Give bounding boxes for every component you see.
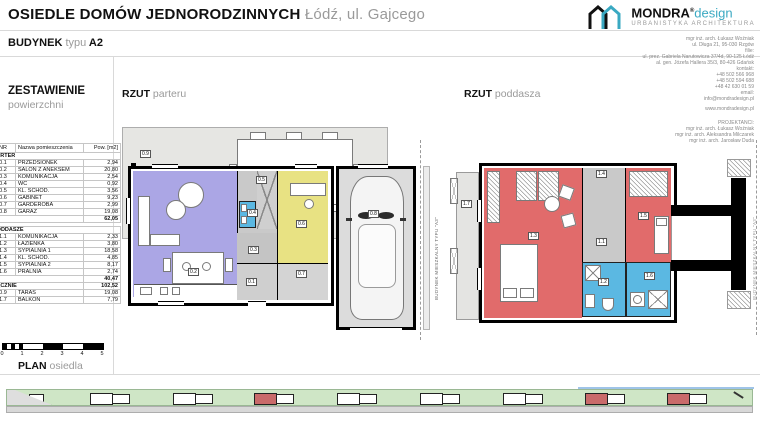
- logo-subtitle: URBANISTYKA ARCHITEKTURA: [631, 21, 755, 27]
- wall-section: [727, 159, 751, 177]
- site-building: [173, 392, 213, 406]
- section-parter: PARTER: [0, 153, 121, 160]
- site-building: [503, 392, 543, 406]
- attic-wall: [731, 178, 746, 290]
- room-entry: [237, 263, 277, 300]
- scale-bar: [2, 343, 104, 350]
- site-road: [6, 406, 753, 413]
- furniture-chair: [225, 258, 233, 272]
- kitchen-sink: [172, 287, 180, 295]
- scale-tick: 5: [97, 351, 107, 357]
- table-header-row: NR Nazwa pomieszczenia Pow. [m2]: [0, 144, 121, 153]
- railing-section: [450, 178, 458, 204]
- table-row: 0.6GABINET9,23: [0, 195, 121, 202]
- site-building-highlighted: [254, 392, 294, 406]
- attic-wall: [671, 260, 731, 271]
- room-label: 1.2: [598, 278, 609, 286]
- summary-title: ZESTAWIENIE: [8, 85, 85, 97]
- attic-wall: [671, 205, 731, 216]
- scale-tick: 2: [37, 351, 47, 357]
- col-area: Pow. [m2]: [84, 144, 121, 153]
- room-hall-attic: [582, 232, 626, 262]
- section-poddasze: PODDASZE: [0, 227, 121, 234]
- room-label: 0.1: [246, 278, 257, 286]
- grand-total-row: ŁĄCZNIE102,52: [0, 283, 121, 290]
- room-label: 1.5: [638, 212, 649, 220]
- furniture-pillow: [503, 288, 517, 298]
- logo-wordmark: MONDRA®design: [631, 4, 755, 20]
- table-row: 1.6PRALNIA2,74: [0, 269, 121, 276]
- ground-floor-plan-title: RZUT parteru: [122, 88, 186, 100]
- furniture-wardrobe: [629, 171, 668, 197]
- divider: [0, 30, 760, 31]
- bath-sink: [585, 294, 595, 308]
- furniture-pillow: [520, 288, 534, 298]
- table-row: 0.8GARAŻ19,08: [0, 209, 121, 216]
- building-type: A2: [89, 37, 103, 49]
- scale-tick: 0: [0, 351, 7, 357]
- room-label: 0.4: [247, 209, 258, 217]
- furniture-chair: [163, 258, 171, 272]
- furniture-desk: [290, 183, 326, 196]
- window: [158, 301, 184, 306]
- neighbour-wall: [423, 166, 430, 330]
- room-label: 1.7: [461, 200, 472, 208]
- furniture-chair: [286, 132, 302, 140]
- scale-tick: 1: [17, 351, 27, 357]
- furniture-chair: [304, 199, 314, 209]
- scale-tick: 4: [77, 351, 87, 357]
- room-label: 1.6: [644, 272, 655, 280]
- room-label: 0.6: [296, 220, 307, 228]
- car-roof: [358, 224, 396, 288]
- table-row: 1.3SYPIALNIA 118,58: [0, 248, 121, 255]
- neighbour-building-note: BUDYNEK MIESZKALNY TYPU "A3": [752, 217, 757, 300]
- summary-subtitle: powierzchni: [8, 99, 63, 111]
- furniture-sofa: [150, 234, 180, 246]
- table-row: 1.2ŁAZIENKA3,80: [0, 241, 121, 248]
- balcony-door: [477, 200, 482, 222]
- table-row: 1.5SYPIALNIA 28,17: [0, 262, 121, 269]
- furniture-table-round: [166, 200, 186, 220]
- table-row: 0.2SALON Z ANEKSEM20,80: [0, 167, 121, 174]
- furniture-wardrobe: [487, 171, 500, 223]
- bath-toilet: [602, 298, 614, 311]
- table-row: 0.7GARDEROBA2,99: [0, 202, 121, 209]
- room-balcony: [456, 172, 479, 320]
- table-row: 0.4WC0,92: [0, 181, 121, 188]
- col-name: Nazwa pomieszczenia: [16, 144, 84, 153]
- site-building-highlighted: [667, 392, 707, 406]
- room-label: 0.9: [140, 150, 151, 158]
- contact-block: mgr inż. arch. Łukasz Woźniak ul. Długa …: [643, 36, 754, 144]
- poddasze-subtotal: 40,47: [0, 276, 121, 283]
- room-label: 0.8: [368, 210, 379, 218]
- site-building: [420, 392, 460, 406]
- kitchen-sink: [160, 287, 168, 295]
- room-label: 0.2: [188, 268, 199, 276]
- siteplan-title: PLAN osiedla: [18, 360, 83, 372]
- boundary-line: [420, 140, 421, 340]
- area-table: NR Nazwa pomieszczenia Pow. [m2] PARTER …: [0, 143, 121, 304]
- wc-toilet: [241, 216, 247, 224]
- table-row: 1.4KL. SCHOD.4,85: [0, 255, 121, 262]
- car-mirror: [400, 218, 406, 221]
- room-label: 1.4: [596, 170, 607, 178]
- table-row: 0.9TARAS19,08: [0, 290, 121, 297]
- building-title: BUDYNEK typu A2: [8, 37, 103, 49]
- estate-name: OSIEDLE DOMÓW JEDNORODZINNYCH: [8, 6, 300, 23]
- table-row: 0.1PRZEDSIONEK2,94: [0, 160, 121, 167]
- table-row: 1.7BALKON7,79: [0, 297, 121, 304]
- window: [126, 198, 131, 224]
- car-windshield: [378, 212, 394, 219]
- window: [152, 164, 178, 169]
- window: [295, 164, 317, 169]
- washing-machine-drum: [633, 295, 642, 304]
- attic-plan-title: RZUT poddasza: [464, 88, 540, 100]
- laundry-counter: [648, 290, 668, 309]
- entry-door: [248, 301, 266, 306]
- table-row: 0.3KOMUNIKACJA2,54: [0, 174, 121, 181]
- table-row: 1.1KOMUNIKACJA2,33: [0, 234, 121, 241]
- col-nr: NR: [0, 144, 16, 153]
- furniture-table-round: [544, 196, 560, 212]
- company-logo: MONDRA®design URBANISTYKA ARCHITEKTURA: [587, 4, 755, 30]
- garage-door: [350, 327, 402, 332]
- furniture-pillow: [656, 218, 667, 226]
- siteplan-buildings: [6, 389, 753, 406]
- balcony-door: [477, 268, 482, 290]
- designers-list: mgr inż. arch. Łukasz Woźniak mgr inż. a…: [643, 126, 754, 144]
- room-wardrobe: [277, 263, 328, 300]
- furniture-plate: [202, 262, 211, 271]
- parter-subtotal: 62,05: [0, 216, 121, 223]
- room-label: 0.7: [296, 270, 307, 278]
- building-label: BUDYNEK: [8, 37, 62, 49]
- site-building: [337, 392, 377, 406]
- kitchen-hob: [140, 287, 152, 295]
- neighbour-building-note: BUDYNEK MIESZKALNY TYPU "A3": [434, 217, 439, 300]
- mondra-m-icon: [587, 4, 625, 30]
- roof-over-garage: [671, 216, 731, 260]
- drawing-sheet: OSIEDLE DOMÓW JEDNORODZINNYCH Łódź, ul. …: [0, 0, 760, 428]
- room-label: 0.5: [256, 176, 267, 184]
- room-label: 1.3: [528, 232, 539, 240]
- car-mirror: [346, 218, 352, 221]
- table-row: 0.5KL. SCHOD.3,56: [0, 188, 121, 195]
- building-typu: typu: [65, 37, 86, 49]
- divider: [0, 374, 760, 375]
- furniture-chair: [322, 132, 338, 140]
- furniture-sofa: [138, 196, 150, 246]
- railing-section: [450, 248, 458, 274]
- contact-lines: mgr inż. arch. Łukasz Woźniak ul. Długa …: [643, 36, 754, 102]
- site-building-highlighted: [585, 392, 625, 406]
- room-label: 0.3: [248, 246, 259, 254]
- furniture-chair: [250, 132, 266, 140]
- furniture-wardrobe: [516, 171, 537, 201]
- scale-tick: 3: [57, 351, 67, 357]
- site-building: [90, 392, 130, 406]
- estate-location: Łódź, ul. Gajcego: [305, 6, 425, 23]
- wall-section: [727, 291, 751, 309]
- room-label: 1.1: [596, 238, 607, 246]
- window: [358, 164, 388, 169]
- page-title: OSIEDLE DOMÓW JEDNORODZINNYCH Łódź, ul. …: [8, 6, 425, 23]
